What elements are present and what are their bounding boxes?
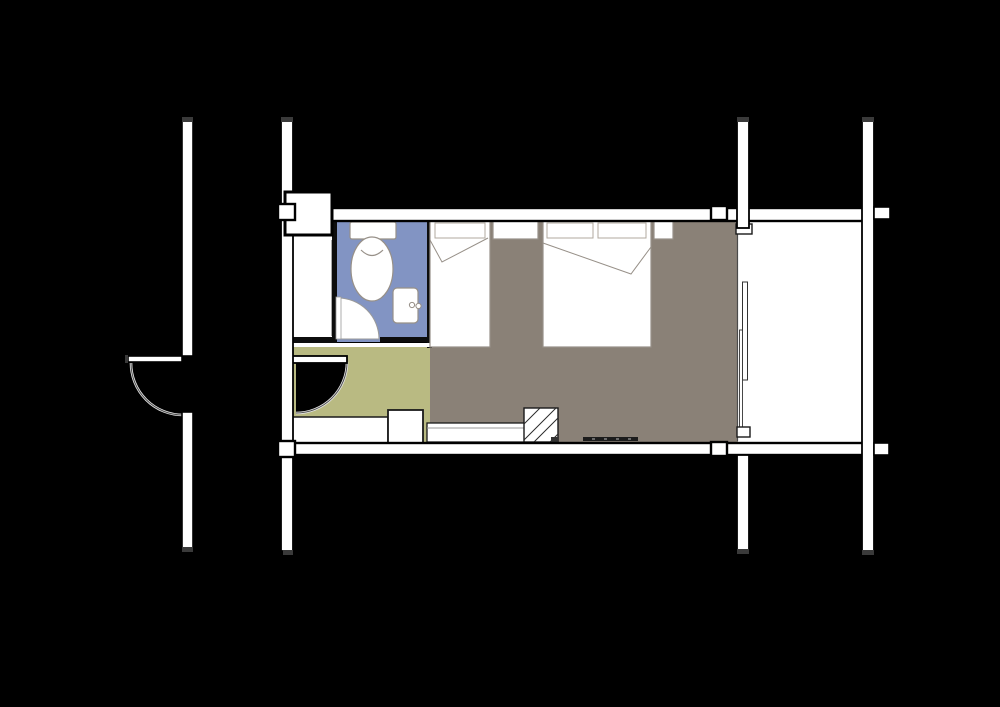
sink-tap-right [416,303,421,308]
wall-cap [737,549,749,554]
sliding-door-jamb-bottom [737,427,750,437]
counter-top [292,417,388,443]
sliding-panel-inner [743,282,748,380]
luggage-rack-foot [551,437,558,442]
nightstand-left [493,221,538,239]
luggage-rack [524,408,558,442]
double-bed-pillow-left [547,223,593,238]
wall-lining-strip [290,343,430,347]
corridor-door-head-wall [128,356,182,362]
bottom-right-wall-stub [874,443,889,455]
bottom-wall [293,443,874,455]
closet-floor [293,235,333,338]
column-bottom-right [711,442,727,456]
balcony-floor [738,222,862,442]
floor-plan-canvas [0,0,1000,707]
closet-bottom-wall [290,337,337,343]
wall-cap [182,117,193,122]
balcony-partition-upper [737,121,749,228]
toilet-bowl [351,237,393,301]
wall-cap [283,550,293,555]
tv-console [583,437,638,441]
balcony-partition-lower [737,455,749,550]
corridor-wall-upper [182,120,193,356]
unit-left-wall [281,121,293,551]
top-wall [330,208,874,221]
wall-cap [281,117,293,122]
single-bed [430,221,490,347]
counter-cabinet [388,410,423,443]
wall-cap [862,117,874,122]
floor-plan-drawing [0,0,1000,707]
wall-cap [862,550,874,555]
top-right-wall-stub [874,207,890,219]
luggage-rack-frame [524,408,558,442]
double-bed [543,221,651,347]
sink-tap-left [409,302,414,307]
bathroom-door-leaf [336,297,341,339]
column-bottom-left [278,441,295,457]
single-bed-pillow [435,223,485,238]
double-bed-pillow-right [598,223,646,238]
column-top-right [711,206,727,220]
sliding-panel-outer [740,330,743,428]
wall-cap [182,547,193,552]
shaft-column [278,204,295,220]
double-bed-mattress [543,221,651,347]
right-wall [862,121,874,551]
corridor-door-jamb-cap [125,355,128,363]
corridor-wall-lower [182,412,193,548]
wall-cap [737,117,749,122]
bathroom-bottom-wall [380,337,432,342]
sink [393,288,421,323]
nightstand-right [654,221,673,239]
single-bed-mattress [430,221,490,347]
